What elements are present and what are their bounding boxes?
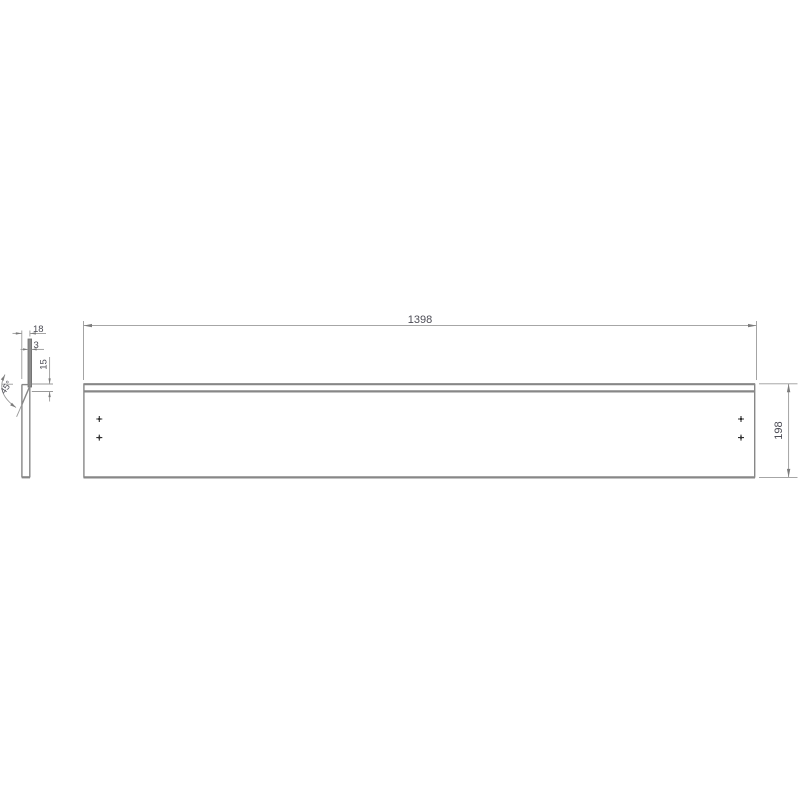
arrowhead	[84, 324, 93, 327]
side-view	[17, 339, 32, 477]
hole-mark	[96, 416, 102, 422]
dimension-groove-depth: 15	[32, 357, 53, 402]
dimension-height-text: 198	[773, 421, 785, 439]
dimension-length: 1398	[84, 314, 757, 380]
dimension-height: 198	[759, 384, 798, 478]
dimension-strip-thickness-text: 3	[34, 340, 39, 351]
dimension-groove-depth-text: 15	[39, 359, 50, 370]
front-view	[84, 384, 756, 478]
arrowhead	[787, 469, 790, 478]
hole-mark	[738, 416, 744, 422]
technical-drawing-svg: 1398 198	[0, 0, 800, 800]
strip-section	[28, 339, 32, 387]
arrowhead	[748, 324, 757, 327]
dimension-strip-thickness: 3	[21, 340, 45, 351]
arrowhead	[48, 392, 50, 398]
arrowhead	[16, 332, 22, 334]
arrowhead	[23, 348, 28, 350]
arrowhead	[48, 378, 50, 384]
arrowhead	[787, 384, 790, 393]
hole-mark	[738, 435, 744, 441]
dimension-length-text: 1398	[408, 314, 432, 326]
hole-mark	[96, 435, 102, 441]
dimension-thickness-text: 18	[33, 324, 44, 335]
drawing-canvas: 1398 198	[0, 0, 800, 800]
chamfer-extension-line	[17, 405, 22, 417]
chamfer-line	[22, 386, 30, 404]
dimension-chamfer-angle: 45°	[0, 374, 17, 409]
